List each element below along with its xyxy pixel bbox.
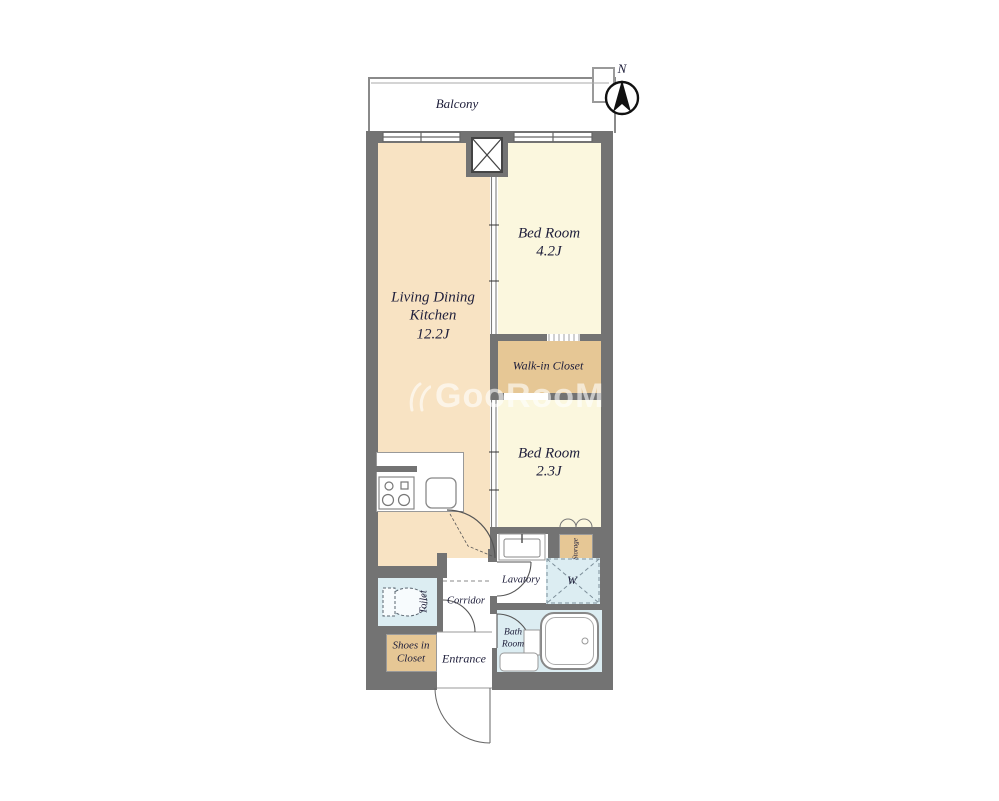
ldk-name: Living Dining Kitchen <box>377 289 489 326</box>
storage-label: Storage <box>572 538 581 560</box>
lavatory-door-gap <box>490 562 497 596</box>
partition-strip-2 <box>490 400 498 527</box>
bedroom2-label: Bed Room 2.3J <box>518 445 580 482</box>
bedroom1-name: Bed Room <box>518 225 580 243</box>
partition-strip-1 <box>490 177 498 334</box>
bedroom1-label: Bed Room 4.2J <box>518 225 580 262</box>
lavatory-label: Lavatory <box>502 575 540 588</box>
walkin-closet-label: Walk-in Closet <box>513 359 584 374</box>
corridor-label: Corridor <box>447 596 485 609</box>
toilet-right-wall <box>437 578 443 632</box>
floor-plan: N Balcony Living Dining Kitchen 12.2J Be… <box>0 0 999 801</box>
wic-door-gap-top <box>547 334 580 341</box>
bedroom1-size: 4.2J <box>518 243 580 261</box>
balcony-partition-panel <box>592 67 615 103</box>
toilet-label: Toilet <box>419 590 432 614</box>
bedroom2-size: 2.3J <box>518 463 580 481</box>
washing-machine-label: W <box>567 574 577 588</box>
entrance-label: Entrance <box>442 652 486 667</box>
ldk-label: Living Dining Kitchen 12.2J <box>377 289 489 344</box>
balcony-area <box>368 77 616 133</box>
pipe-shaft-housing <box>466 131 508 177</box>
wic-door-gap-bottom <box>504 393 548 400</box>
balcony-label: Balcony <box>436 96 479 112</box>
wall-stub-lavatory-corner <box>488 549 497 562</box>
wall-stub-ldk-door-left <box>437 553 447 578</box>
kitchen-counter <box>376 452 464 512</box>
window-gap-right <box>514 133 592 141</box>
north-label: N <box>618 61 627 77</box>
entrance-door-arc <box>435 688 490 743</box>
window-gap-left <box>383 133 460 141</box>
bedroom2-name: Bed Room <box>518 445 580 463</box>
shoes-closet-label: Shoes in Closet <box>384 640 438 667</box>
ldk-size: 12.2J <box>377 325 489 343</box>
lavatory-floor <box>497 534 548 603</box>
bath-room-label: Bath Room <box>496 627 530 650</box>
